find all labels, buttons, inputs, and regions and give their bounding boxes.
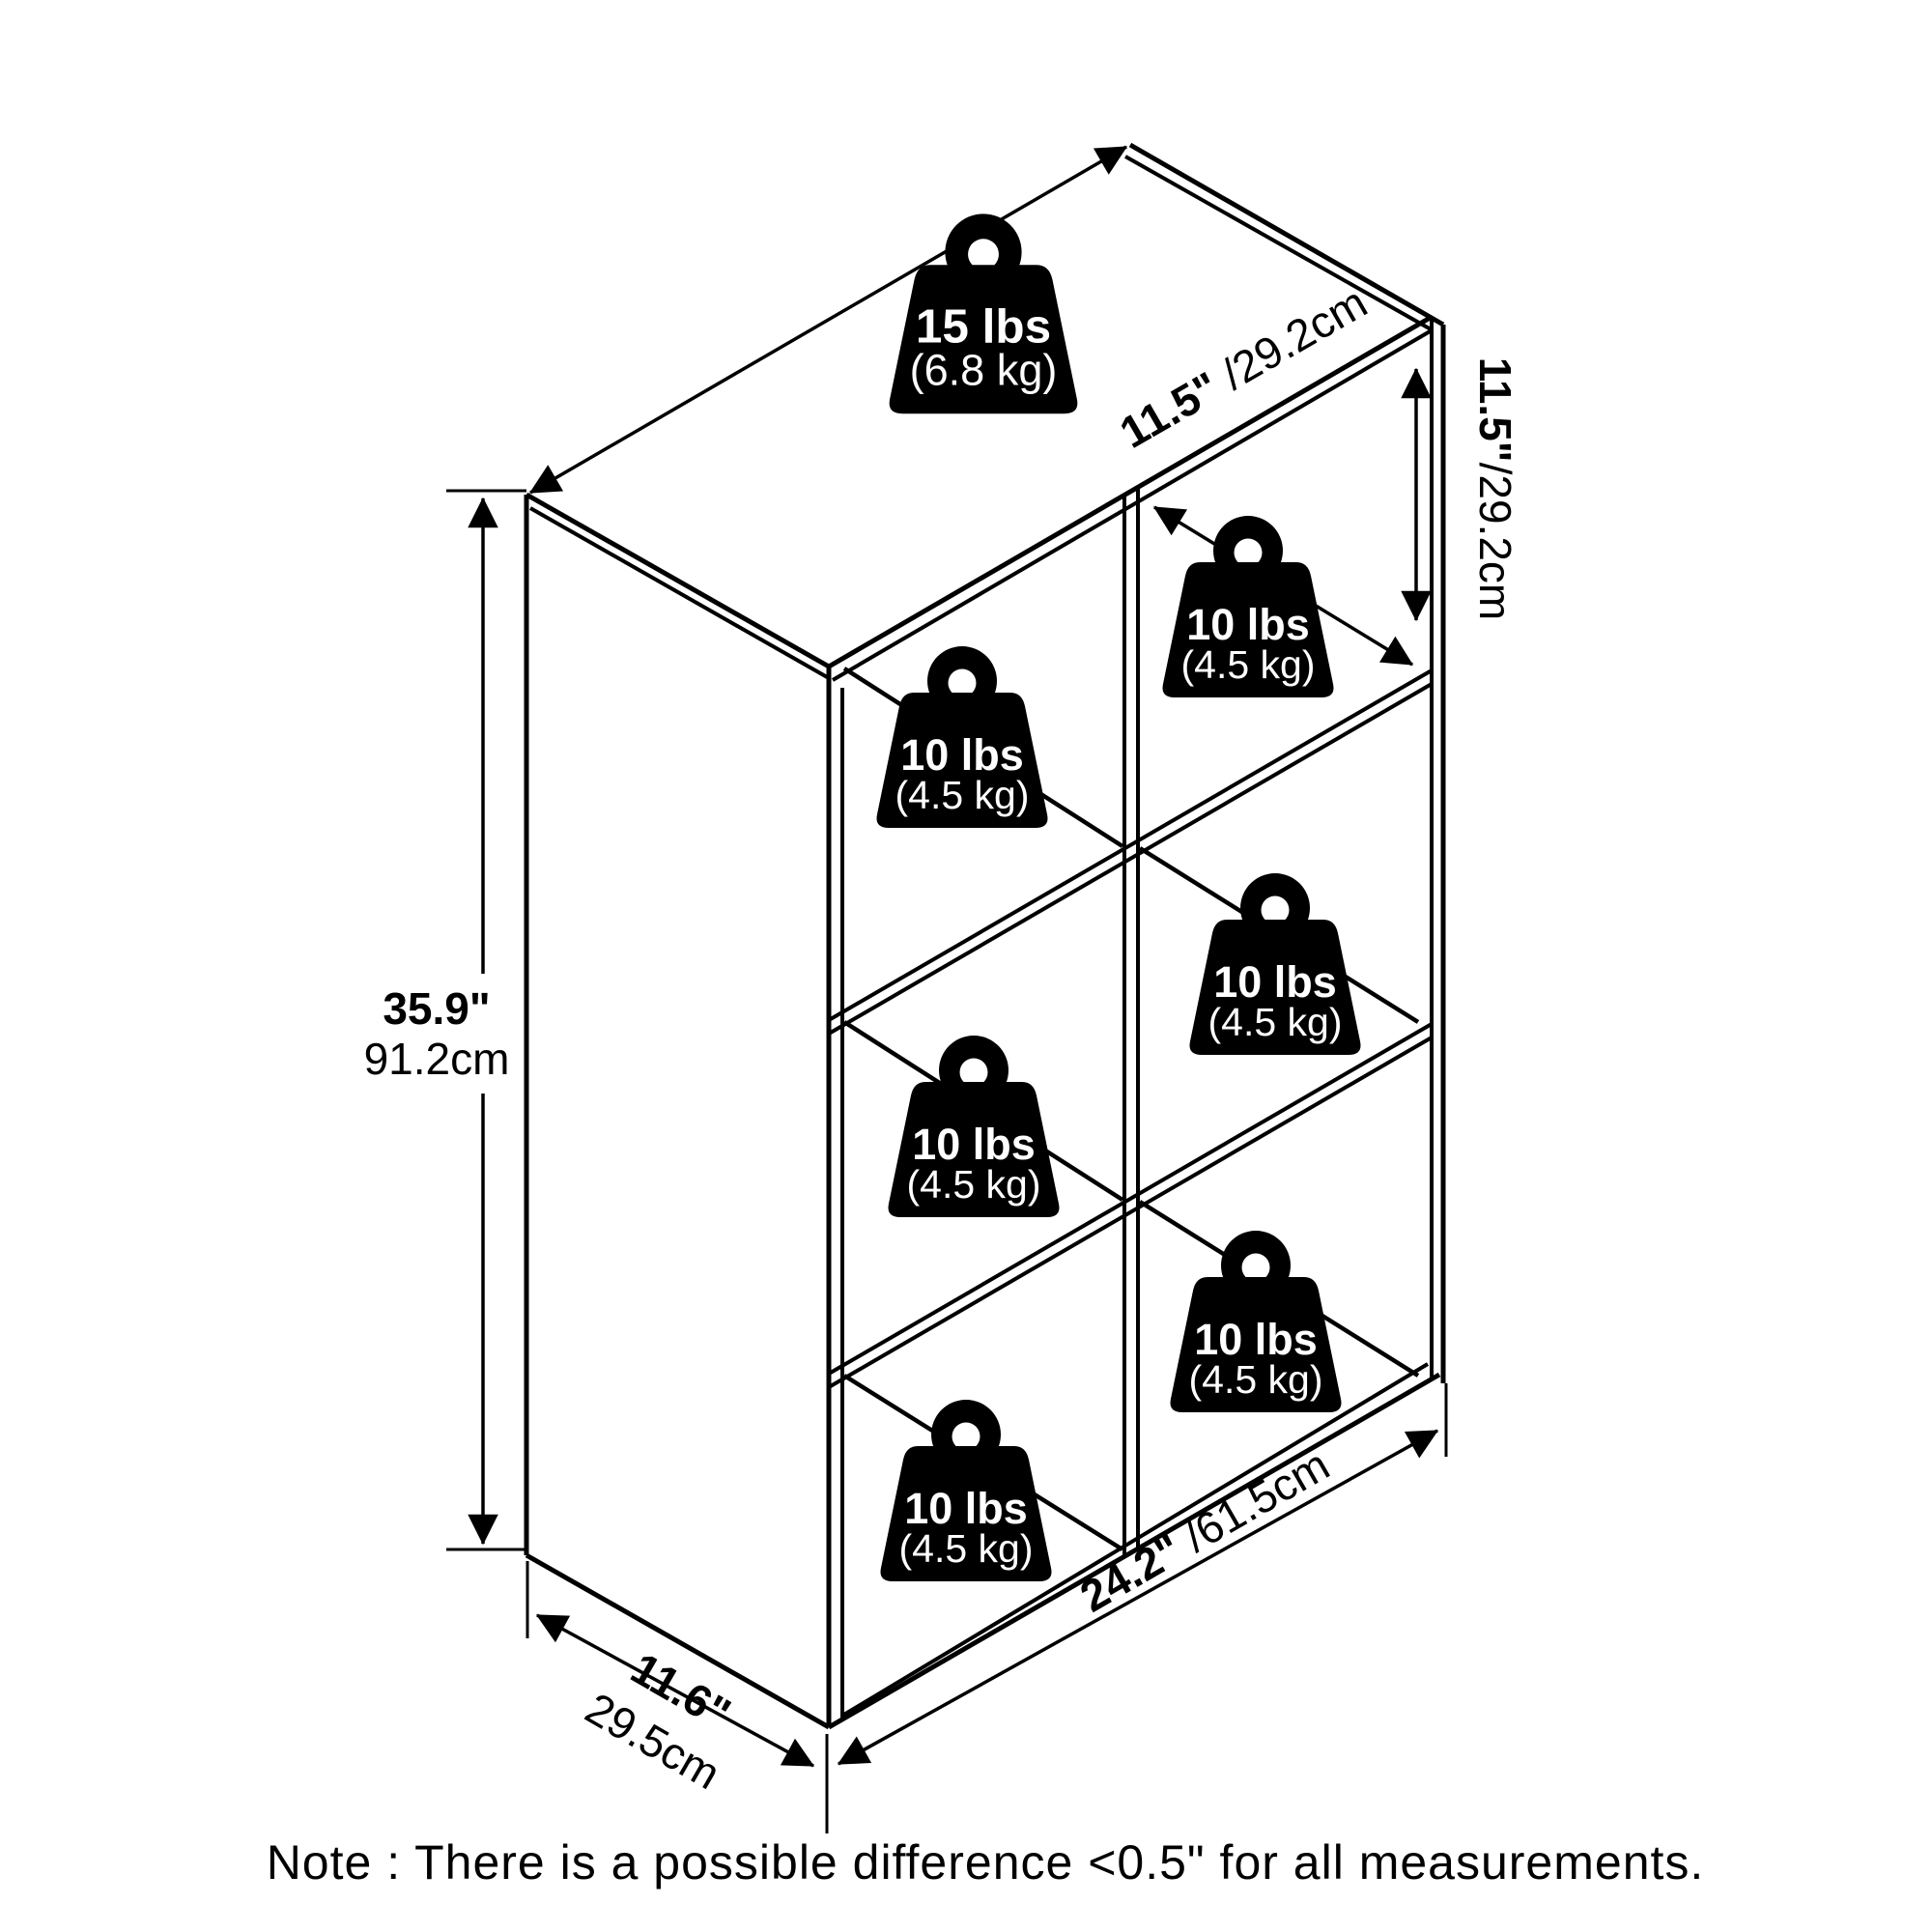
top-depth-label: 11.5" /29.2cm [1111,276,1375,458]
height-label-metric: 91.2cm [364,1034,510,1084]
width-label: 24.2" /61.5cm [1071,1439,1337,1622]
dimension-diagram: 35.9" 91.2cm 11.5" /29.2cm 11.5"/29.2cm … [0,0,1932,1932]
weight-metric: (4.5 kg) [1181,642,1316,687]
top-front-left-edge-inner [530,508,829,678]
top-back-right-edge [1130,145,1443,325]
weight-metric: (4.5 kg) [907,1162,1041,1207]
top-back-right-edge-inner [1125,156,1433,330]
diagram-svg: 35.9" 91.2cm 11.5" /29.2cm 11.5"/29.2cm … [0,0,1932,1932]
dimension-base-depth: 11.6" 29.5cm [527,1561,813,1799]
cabinet-left-panel [526,495,842,1727]
weight-icon-cube-row3-right: 10 lbs (4.5 kg) [1171,1231,1342,1412]
note-text: Note : There is a possible difference <0… [267,1835,1705,1889]
weight-icon-top: 15 lbs (6.8 kg) [890,213,1078,413]
cube-height-label: 11.5"/29.2cm [1470,357,1520,620]
weight-icon-cube-row3-left: 10 lbs (4.5 kg) [881,1400,1052,1581]
weight-icon-cube-row1-left: 10 lbs (4.5 kg) [877,646,1048,828]
weight-icon-cube-row1-right: 10 lbs (4.5 kg) [1163,516,1334,697]
weight-icon-cube-row2-left: 10 lbs (4.5 kg) [889,1036,1060,1217]
weight-metric: (4.5 kg) [1208,1000,1343,1044]
weight-metric: (4.5 kg) [895,773,1030,817]
weight-metric: (6.8 kg) [910,346,1058,395]
weight-metric: (4.5 kg) [1189,1357,1323,1402]
dimension-height: 35.9" 91.2cm [364,491,526,1549]
weight-icon-cube-row2-right: 10 lbs (4.5 kg) [1190,873,1361,1055]
height-label-imperial: 35.9" [383,983,490,1034]
top-front-left-edge [526,495,829,667]
weight-metric: (4.5 kg) [899,1526,1034,1571]
